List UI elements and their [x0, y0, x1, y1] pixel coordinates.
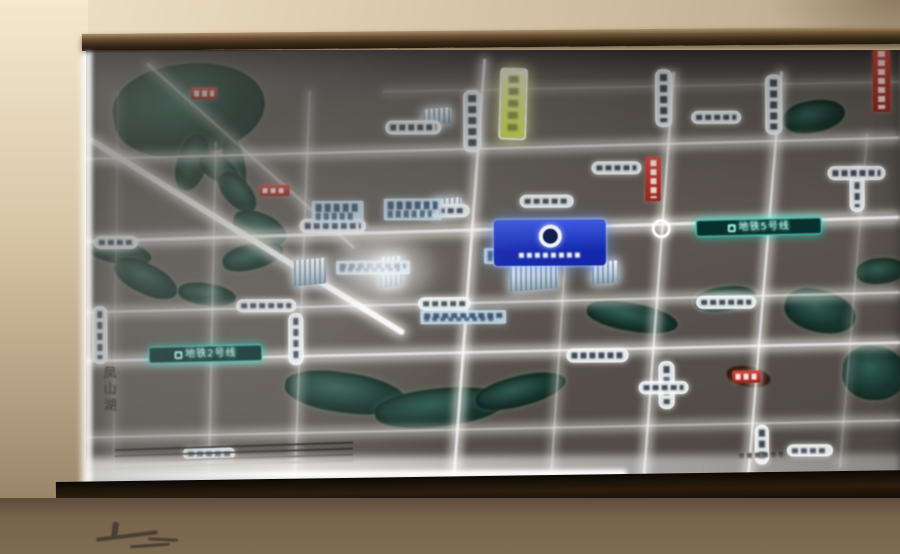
project-name-illegible [519, 253, 581, 258]
poi-label-red-vertical [645, 157, 660, 201]
road-name-plate [639, 381, 689, 394]
road-name-plate [696, 296, 756, 309]
road-name-plate [566, 348, 628, 362]
map-content: 地铁2号线 地铁5号线 凤山湖 [86, 50, 900, 490]
road-name-plate-vertical [92, 306, 107, 364]
backlight-leak-left [78, 52, 92, 492]
lake-name-label: 凤山湖 [98, 366, 117, 414]
road-name-plate [520, 195, 574, 208]
road-vertical [207, 141, 218, 490]
water-body [855, 255, 900, 286]
project-location-badge [494, 219, 606, 266]
road-name-plate-vertical [463, 90, 481, 152]
poi-label-red [260, 185, 290, 196]
metro-icon [728, 224, 736, 232]
metro-icon [174, 351, 182, 359]
poi-label-red [191, 87, 217, 99]
highway-badge-yellow [498, 67, 528, 140]
road-name-plate [827, 166, 885, 180]
metro-line-2-label: 地铁2号线 [185, 348, 237, 359]
poi-label-red-vertical [873, 50, 890, 112]
poi-label-red [733, 371, 761, 383]
road-name-plate [591, 161, 641, 174]
metro-line-5-label: 地铁5号线 [738, 221, 790, 232]
building-icon [510, 262, 558, 292]
photo-of-illuminated-map-display: 地铁2号线 地铁5号线 凤山湖 [0, 0, 900, 554]
road-name-plate [691, 111, 741, 124]
developer-logo-icon [538, 225, 561, 248]
water-body [781, 95, 848, 138]
metro-station-icon [652, 219, 671, 238]
metro-line-2-badge: 地铁2号线 [148, 344, 262, 364]
road-name-plate [236, 299, 296, 312]
road-name-plate-vertical [765, 74, 782, 134]
water-body [177, 280, 237, 310]
road-name-plate [94, 236, 138, 249]
road-name-plate [385, 120, 441, 134]
road-name-plate-vertical [655, 69, 672, 127]
camera-glare [301, 210, 462, 326]
metro-line-5-badge: 地铁5号线 [696, 217, 822, 237]
wall-left [0, 0, 88, 554]
map-panel: 地铁2号线 地铁5号线 凤山湖 [86, 50, 900, 490]
road-horizontal [383, 80, 899, 93]
